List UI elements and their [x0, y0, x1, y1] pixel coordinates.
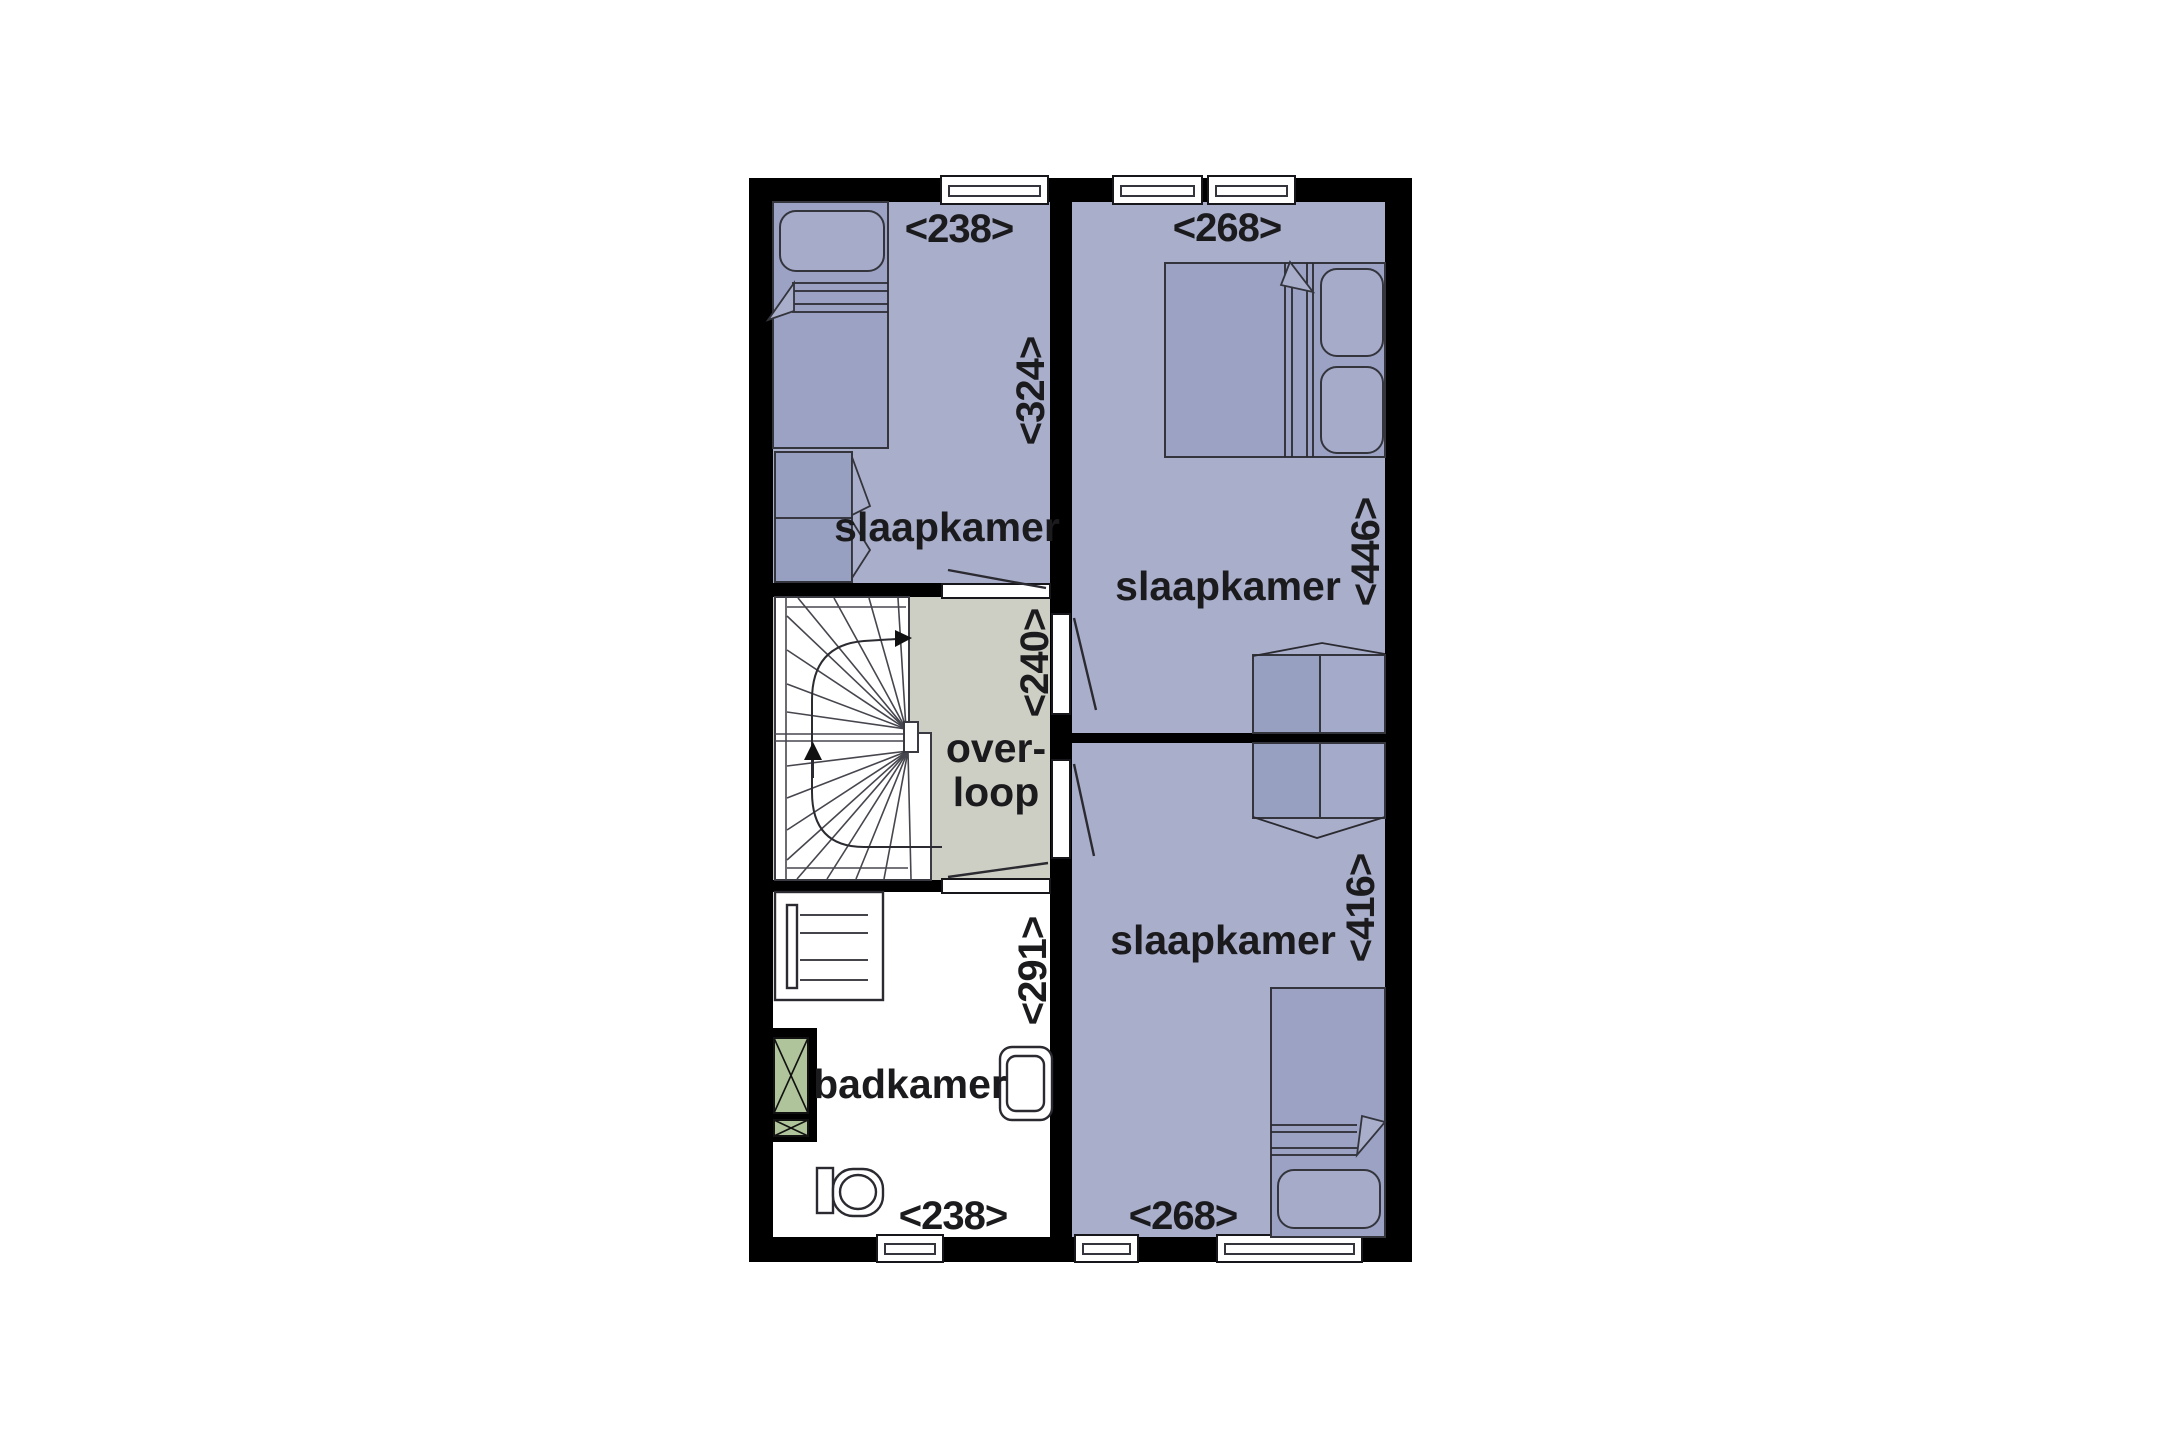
stair-newel-post	[904, 722, 918, 752]
bathtub	[1000, 1047, 1052, 1120]
window-bedroom-top-right-2	[1208, 176, 1295, 204]
dim-bedroom-bottom-right-width: <268>	[1129, 1194, 1237, 1238]
wardrobe-right-half	[1320, 655, 1385, 733]
shelf-unit	[775, 892, 883, 1000]
wardrobe-left-half	[1253, 743, 1320, 818]
window-bedroom-bottom-right-2	[1217, 1235, 1362, 1262]
toilet	[817, 1168, 883, 1216]
wall-center-divider	[1050, 202, 1072, 1237]
room-label-bedroom-top-right: slaapkamer	[1115, 563, 1341, 609]
wall-between-right-bedrooms	[1072, 733, 1385, 743]
pillow	[780, 211, 884, 271]
floorplan-canvas: slaapkamer slaapkamer slaapkamer badkame…	[0, 0, 2160, 1440]
dim-bedroom-top-left-depth: <324>	[1009, 337, 1053, 445]
floorplan-drawing: slaapkamer slaapkamer slaapkamer badkame…	[0, 0, 2160, 1440]
room-label-bedroom-bottom-right: slaapkamer	[1110, 917, 1336, 963]
room-label-landing-line1: over-	[946, 725, 1046, 771]
dim-bedroom-top-right-depth: <446>	[1344, 498, 1388, 606]
window-bedroom-top-left	[941, 176, 1048, 204]
room-label-landing-line2: loop	[953, 769, 1040, 815]
window-bedroom-bottom-right-1	[1075, 1235, 1138, 1262]
dim-bathroom-width: <238>	[899, 1194, 1007, 1238]
room-label-bedroom-top-left: slaapkamer	[834, 504, 1060, 550]
pillow	[1278, 1170, 1380, 1228]
furniture-bedroom-bottom-right	[1253, 743, 1385, 1237]
bathroom-cabinet	[774, 1038, 808, 1136]
window-bedroom-top-right-1	[1113, 176, 1202, 204]
dim-bedroom-top-right-width: <268>	[1173, 206, 1281, 250]
room-label-bathroom: badkamer	[813, 1061, 1007, 1107]
door-frame	[1052, 760, 1070, 858]
pillow	[1321, 367, 1383, 453]
pillow	[1321, 269, 1383, 356]
wardrobe-right-half	[1320, 743, 1385, 818]
dim-bedroom-top-left-width: <238>	[905, 207, 1013, 251]
dim-bedroom-bottom-right-depth: <416>	[1339, 854, 1383, 962]
window-bathroom	[877, 1235, 943, 1262]
wardrobe-left-half	[1253, 655, 1320, 733]
dim-landing-depth: <240>	[1013, 609, 1057, 717]
door-frame	[942, 879, 1050, 893]
dim-bathroom-depth: <291>	[1011, 917, 1055, 1025]
